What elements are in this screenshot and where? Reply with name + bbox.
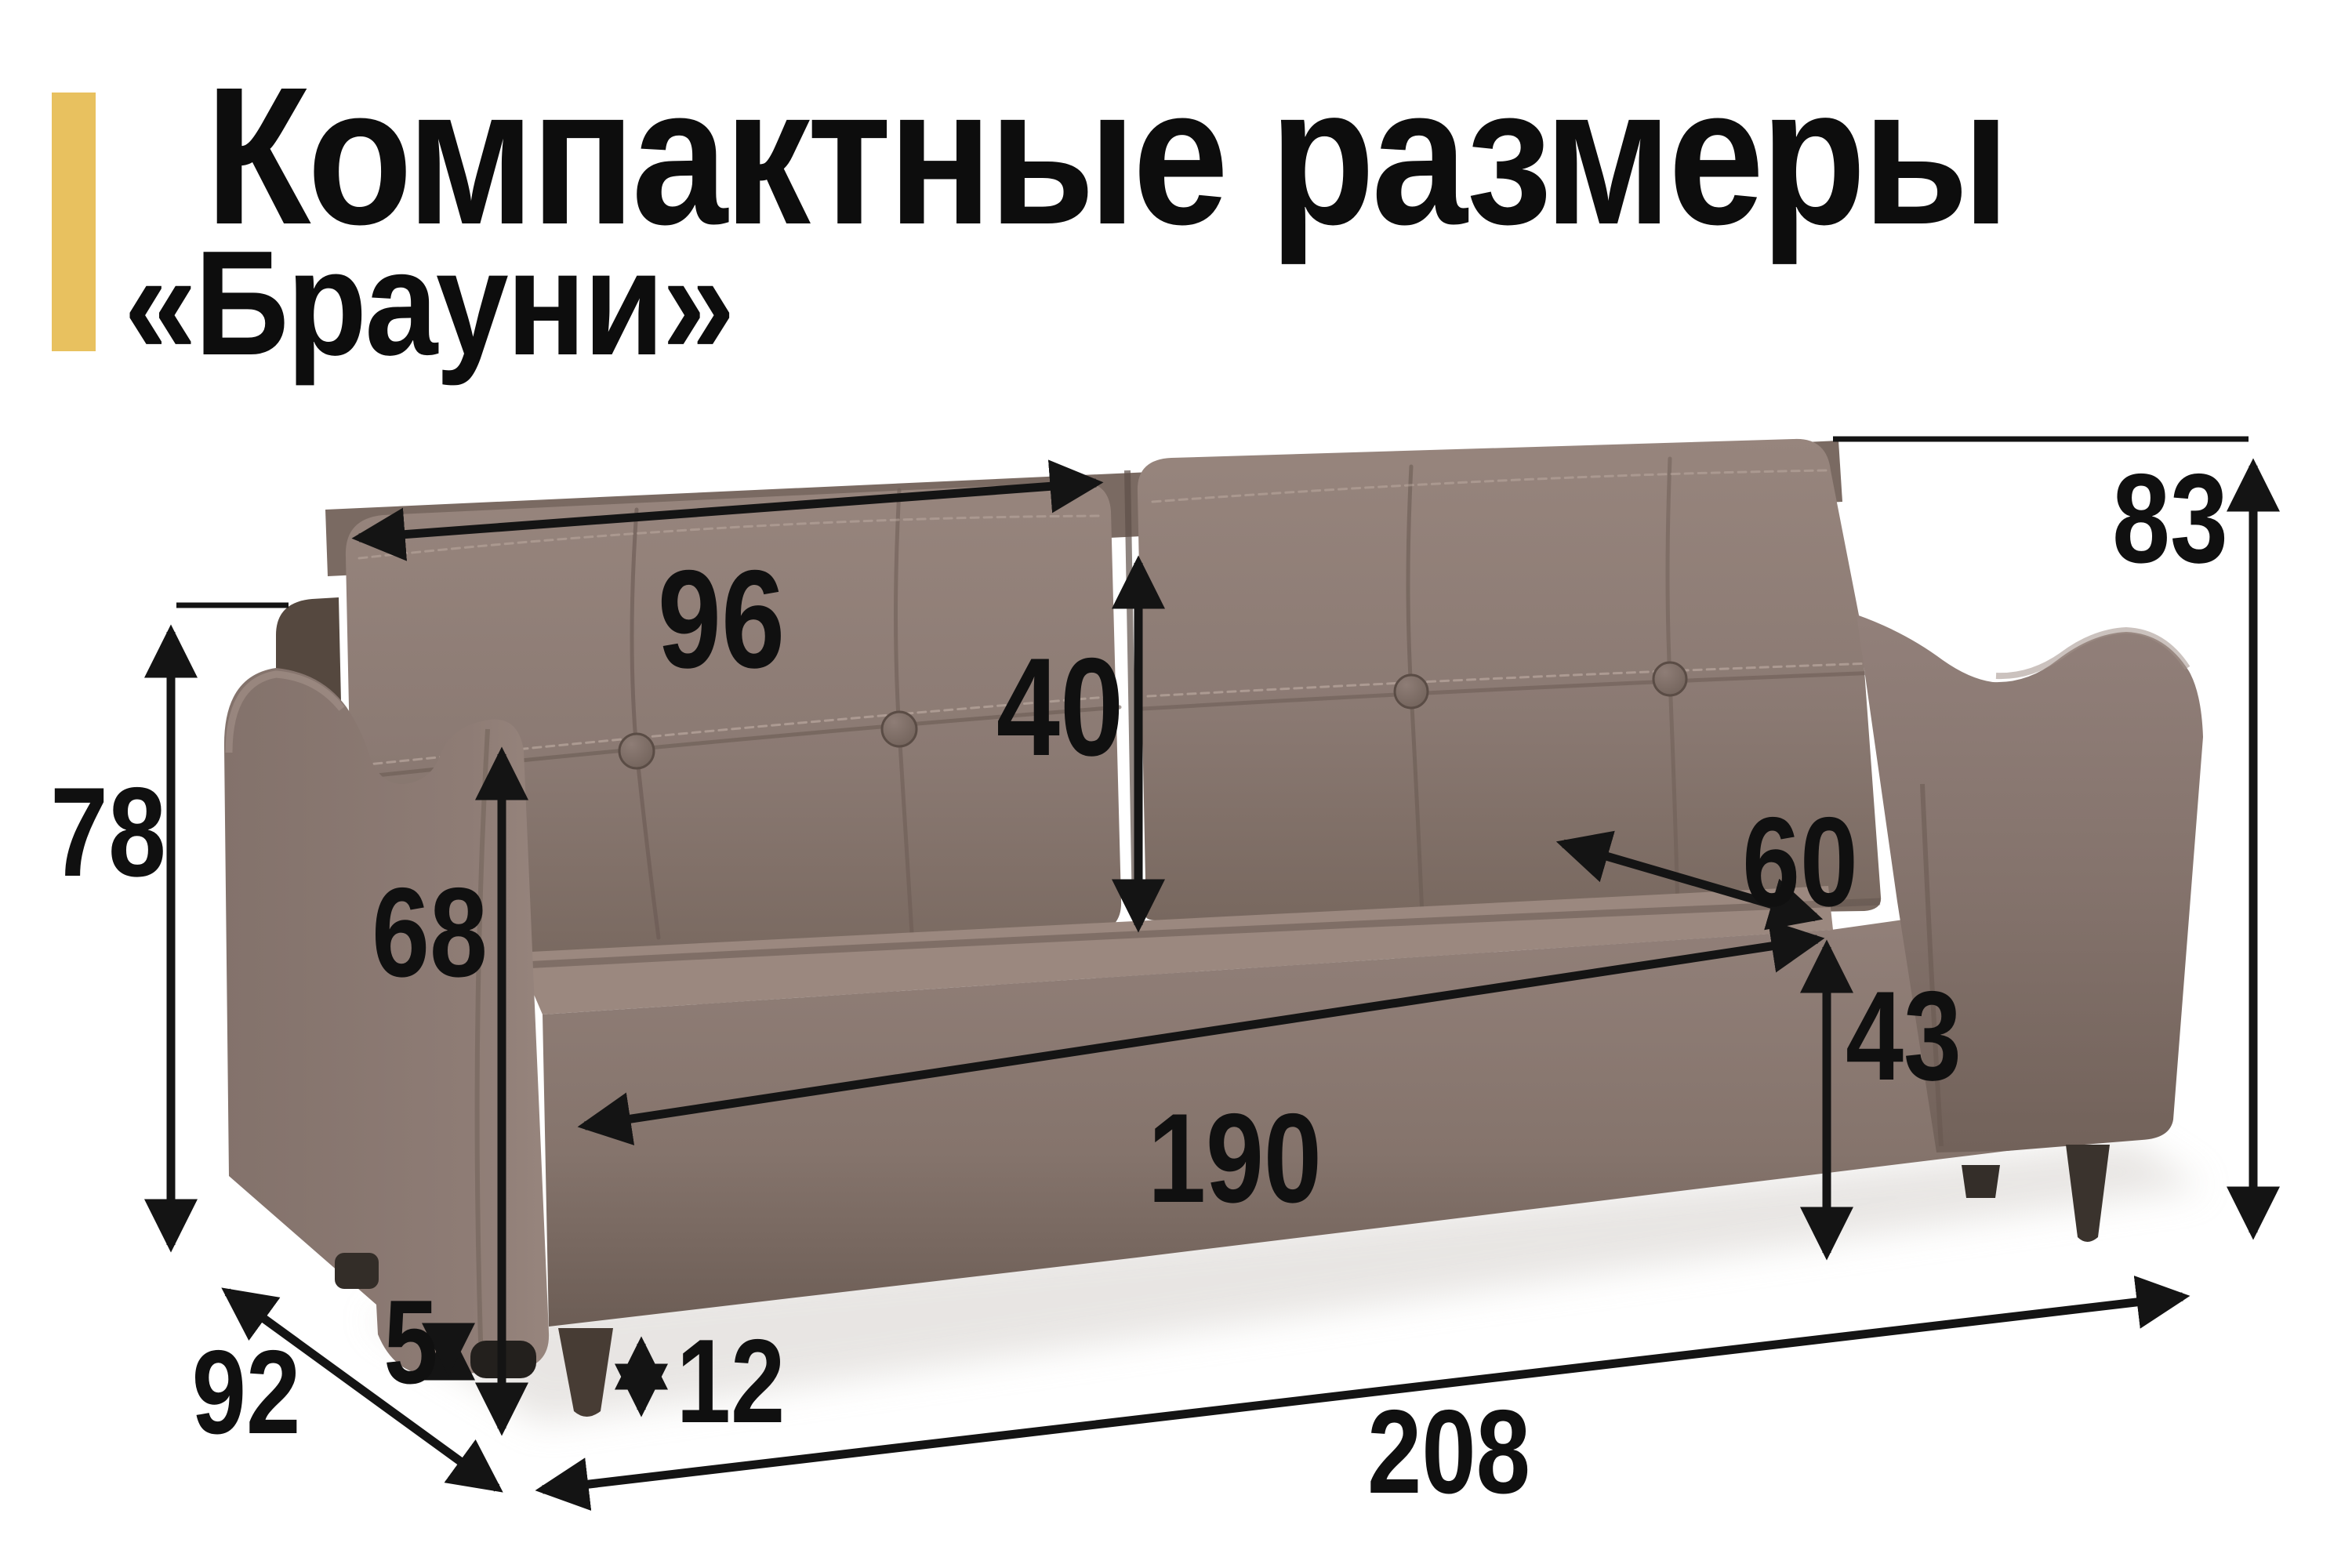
sofa-leg [2066,1145,2110,1242]
dim-label-armrest-height: 68 [372,869,488,996]
dim-label-seat-depth: 60 [1742,799,1858,926]
dim-label-overall-width: 208 [1367,1392,1530,1512]
dim-label-base-clearance: 5 [383,1283,437,1402]
sofa-illustration [0,0,2352,1568]
dim-label-overall-height: 83 [2112,456,2228,583]
sofa-leg [335,1253,379,1289]
dim-label-backrest-height: 78 [50,769,166,896]
dim-label-backrest-cushion-width: 96 [658,550,785,689]
dim-label-overall-depth: 92 [192,1333,301,1452]
sofa-leg [1962,1165,2000,1198]
dim-label-backrest-cushion-height: 40 [996,637,1123,777]
dim-label-seat-height: 43 [1846,973,1962,1100]
dim-label-leg-height: 12 [677,1322,786,1441]
dim-label-seat-width: 190 [1148,1095,1322,1222]
dimension-diagram: 96 40 83 78 68 60 190 43 5 92 12 208 [0,0,2352,1568]
